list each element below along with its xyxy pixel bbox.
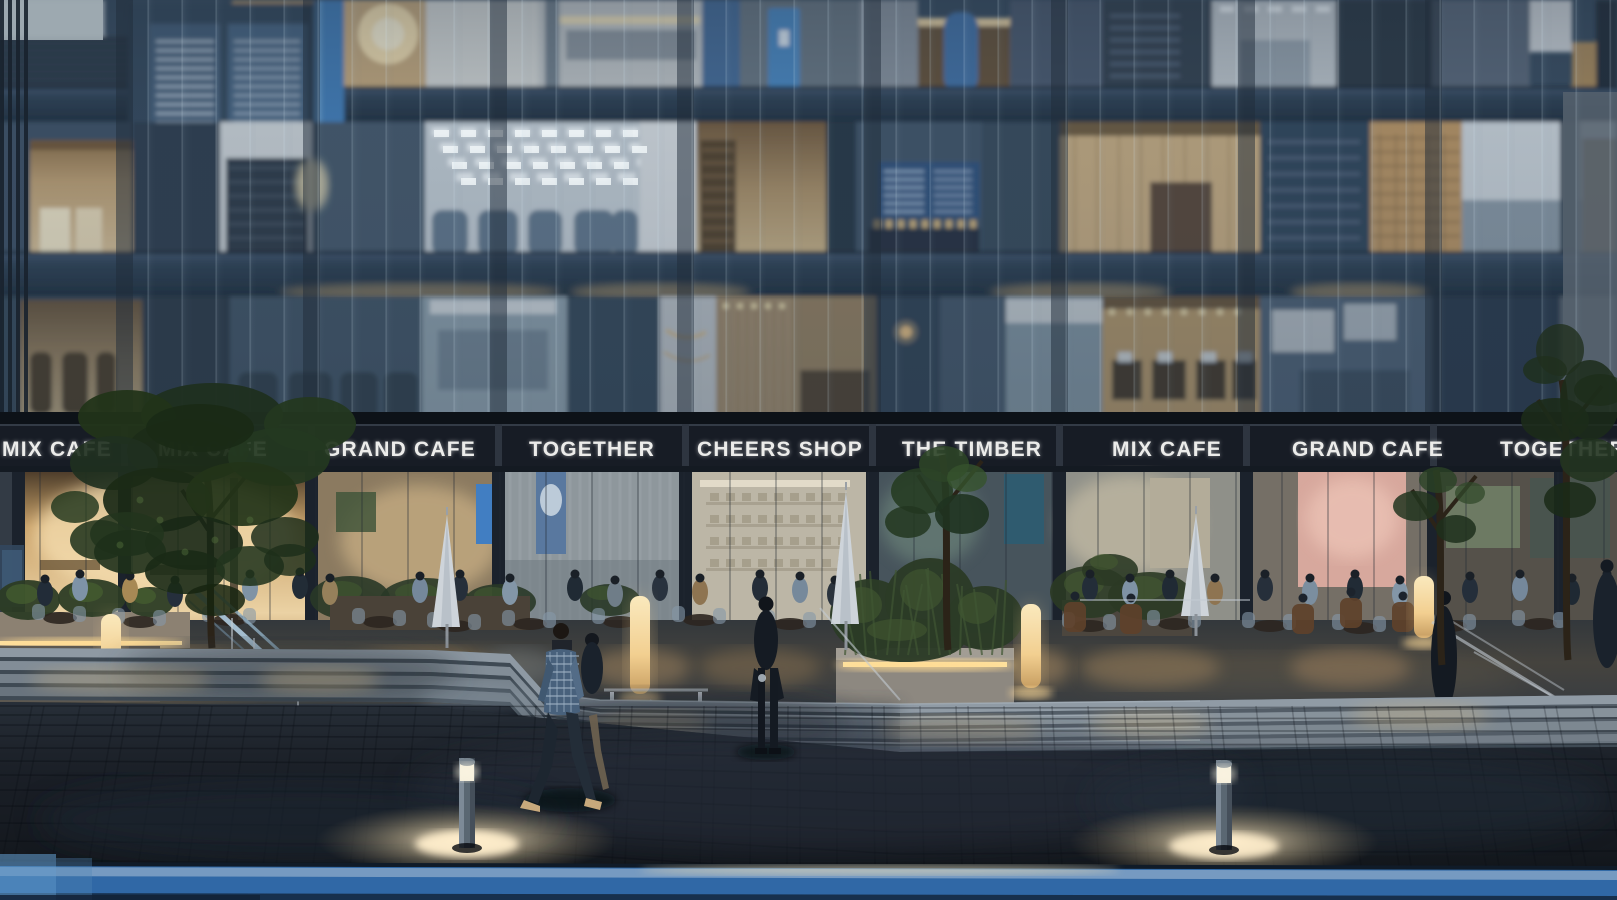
svg-text:GRAND CAFE: GRAND CAFE	[324, 438, 476, 461]
svg-text:GRAND CAFE: GRAND CAFE	[1292, 438, 1444, 461]
svg-text:MIX CAFE: MIX CAFE	[1112, 438, 1222, 461]
svg-text:TOGETHER: TOGETHER	[529, 438, 655, 461]
svg-text:CHEERS SHOP: CHEERS SHOP	[697, 438, 863, 461]
